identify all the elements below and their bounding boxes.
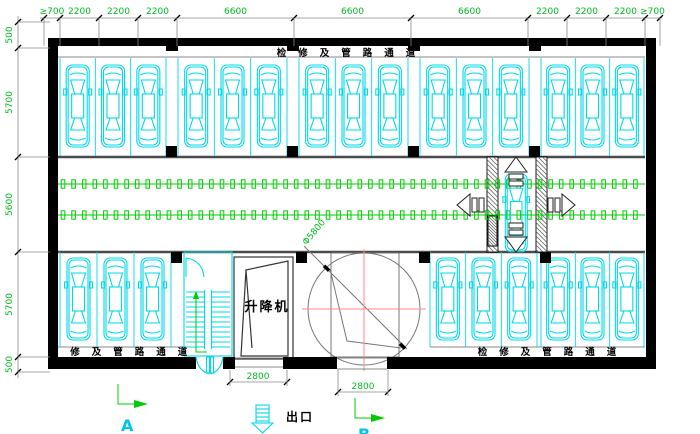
car-icon [219, 65, 247, 147]
dim-label-left: 5700 [5, 293, 15, 316]
lift-label: 升降机 [244, 299, 289, 315]
door-swing [211, 357, 224, 374]
car-icon [139, 258, 167, 340]
car-icon [424, 65, 452, 147]
car-icon [544, 258, 572, 340]
dim-label-top: 2200 [536, 7, 559, 17]
wall-bottom-segment [48, 357, 196, 369]
car-icon [497, 65, 525, 147]
axis-label-a: A [121, 416, 134, 434]
car-shape [139, 258, 167, 340]
car-icon [544, 65, 572, 147]
car-icon [579, 65, 607, 147]
car-icon [613, 65, 641, 147]
car-icon [64, 65, 92, 147]
axis-symbol-a [118, 384, 148, 408]
car-shape [461, 65, 489, 147]
car-shape [613, 258, 641, 340]
car-shape [544, 65, 572, 147]
column-pillar [166, 146, 177, 157]
car-shape [65, 258, 93, 340]
dim-label-top: 2200 [575, 7, 598, 17]
car-shape [579, 65, 607, 147]
car-shape [470, 258, 498, 340]
floor-plan-canvas: Φ5800 升降机 [0, 0, 700, 434]
turntable-platform [331, 253, 399, 357]
dim-label-top: 6600 [224, 7, 247, 17]
axis-symbol-b [355, 398, 385, 422]
car-icon [182, 65, 210, 147]
car-icon [376, 65, 404, 147]
dim-label-left: 500 [5, 356, 15, 373]
dim-label-top: 2200 [68, 7, 91, 17]
dim-label-top: 6600 [341, 7, 364, 17]
door-leaf [211, 357, 214, 373]
stairwell [184, 252, 232, 356]
wall-bottom-pier [223, 357, 235, 369]
car-shape [434, 258, 462, 340]
column-pillar [419, 252, 430, 263]
car-shape [505, 258, 533, 340]
car-icon [255, 65, 283, 147]
dim-label-left: 5700 [5, 91, 15, 114]
wall-bottom-segment [283, 357, 337, 369]
exit-arrow-head-icon [252, 423, 273, 433]
dim-turntable-opening: 2800 [352, 382, 375, 392]
axis-arrow-icon [371, 414, 385, 422]
car-icon [505, 258, 533, 340]
arrow-left-icon [457, 194, 484, 216]
cad-viewport: Φ5800 升降机 [0, 0, 700, 434]
car-icon [65, 258, 93, 340]
dim-lift-opening: 2800 [247, 372, 270, 382]
car-shape [376, 65, 404, 147]
door-swing [196, 357, 210, 374]
car-shape [182, 65, 210, 147]
car-icon [303, 65, 331, 147]
shuttle-arrows [457, 157, 575, 252]
column-pillar [287, 146, 298, 157]
dim-label-top: 2200 [146, 7, 169, 17]
dim-label-top: 6600 [458, 7, 481, 17]
car-shape [303, 65, 331, 147]
car-shape [340, 65, 368, 147]
wall-top [48, 38, 656, 46]
door-leaf [207, 357, 210, 373]
dim-label-top: 2200 [107, 7, 130, 17]
diameter-line [304, 246, 407, 349]
car-icon [434, 258, 462, 340]
column-pillar [540, 252, 551, 263]
exit-symbol [252, 405, 273, 433]
arrow-up-icon [505, 157, 527, 186]
column-pillar [166, 40, 178, 51]
car-icon [99, 65, 127, 147]
car-shape [64, 65, 92, 147]
car-shape [424, 65, 452, 147]
car-shape [255, 65, 283, 147]
turntable-diameter-label: Φ5800 [301, 218, 328, 248]
exit-double-door [196, 357, 223, 374]
car-icon [134, 65, 162, 147]
dim-label-top: 2200 [614, 7, 637, 17]
car-shape [497, 65, 525, 147]
car-icon [461, 65, 489, 147]
car-icon [613, 258, 641, 340]
corridor-label-bottom-left: 检修及管路通道 [49, 346, 200, 358]
car-shape [134, 65, 162, 147]
lift-room: 升降机 [234, 257, 293, 359]
column-pillar [529, 146, 540, 157]
dim-label-left: 500 [5, 26, 15, 43]
car-icon [470, 258, 498, 340]
axis-line [118, 384, 144, 404]
car-shape [613, 65, 641, 147]
car-shape [544, 258, 572, 340]
exit-label: 出口 [286, 409, 314, 424]
axis-label-b: B [358, 425, 370, 434]
wall-bottom-segment [387, 357, 646, 369]
car-shape [219, 65, 247, 147]
stair-door-swing [186, 258, 204, 277]
car-icon [340, 65, 368, 147]
car-icon [579, 258, 607, 340]
column-pillar [408, 146, 419, 157]
exit-arrow-stem [256, 405, 269, 423]
corridor-label-top: 检修及管路通道 [277, 47, 428, 59]
car-shape [579, 258, 607, 340]
axis-line [355, 398, 381, 418]
car-shape [102, 258, 130, 340]
turntable: Φ5800 [301, 218, 426, 371]
stair-divider-gap [204, 290, 212, 349]
dim-label-top: ≥700 [640, 7, 665, 17]
column-pillar [171, 252, 182, 263]
dim-label-left: 5600 [5, 193, 15, 216]
wall-left [48, 38, 58, 369]
corridor-label-bottom-right: 检修及管路通道 [478, 346, 629, 358]
column-pillar [296, 252, 307, 263]
wall-right [646, 38, 656, 369]
car-shape [99, 65, 127, 147]
axis-arrow-icon [134, 400, 148, 408]
diameter-end-mark [399, 342, 406, 349]
car-icon [102, 258, 130, 340]
dim-label-top: ≥700 [40, 7, 65, 17]
column-pillar [529, 40, 541, 51]
